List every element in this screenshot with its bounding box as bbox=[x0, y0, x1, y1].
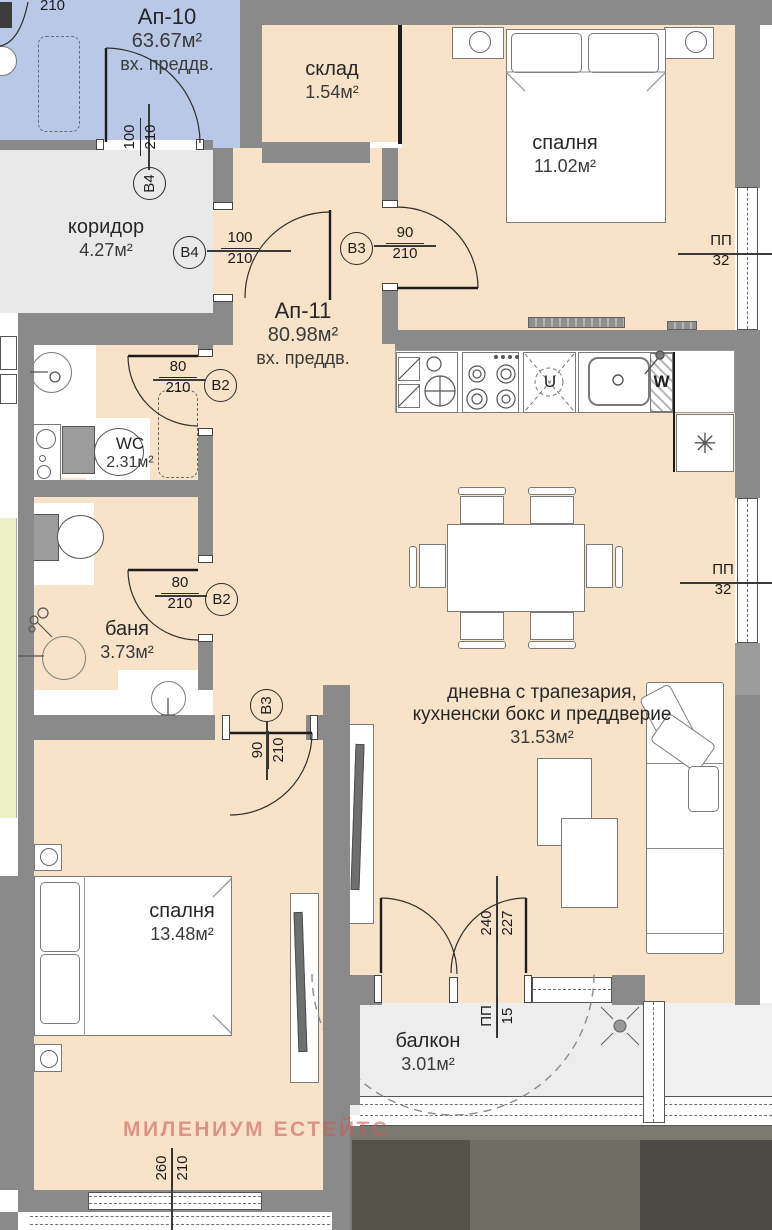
wall bbox=[198, 434, 213, 480]
window-num: 32 bbox=[709, 251, 734, 271]
bath-name: баня bbox=[100, 618, 153, 642]
chair-back bbox=[528, 641, 576, 649]
lamp-icon bbox=[469, 31, 491, 53]
unit-w-text: W bbox=[653, 372, 669, 392]
label-balcony: балкон 3.01м² bbox=[396, 1030, 461, 1075]
bedroom-bottom-area: 13.48м² bbox=[149, 924, 215, 945]
door-tag-b3-kitchen: В3 bbox=[340, 232, 373, 265]
ground-block-3 bbox=[640, 1140, 772, 1230]
window-balcony-fixed bbox=[532, 977, 612, 1003]
door-jamb bbox=[213, 202, 233, 210]
dim-w: 80 bbox=[159, 357, 197, 378]
dim-w: 100 bbox=[221, 228, 259, 249]
chair bbox=[530, 496, 574, 524]
label-bedroom-bottom: спалня 13.48м² bbox=[149, 900, 215, 945]
koridor-area: 4.27м² bbox=[68, 240, 144, 261]
ground-block-2 bbox=[470, 1140, 640, 1230]
window-glass-line bbox=[89, 1196, 261, 1197]
dim-h: 210 bbox=[163, 594, 196, 614]
dim-w: 80 bbox=[161, 573, 199, 594]
pillow bbox=[588, 33, 659, 73]
wall bbox=[213, 148, 233, 208]
label-bath: баня 3.73м² bbox=[100, 618, 153, 663]
washbasin-icon bbox=[31, 352, 72, 393]
wall bbox=[18, 313, 233, 345]
door-jamb bbox=[213, 294, 233, 302]
lamp-icon bbox=[40, 1050, 58, 1068]
door-tag-b2-wc: В2 bbox=[204, 369, 237, 402]
dim-h: 210 bbox=[269, 733, 289, 766]
window-glass-line bbox=[747, 188, 748, 329]
ap10-area: 63.67м² bbox=[120, 30, 214, 54]
window-tag: ПП bbox=[477, 997, 498, 1035]
door-tag-b4-ap10: В4 bbox=[133, 167, 166, 200]
wc-area: 2.31м² bbox=[106, 454, 153, 473]
window-glass-line bbox=[533, 989, 611, 990]
dim-door-b2-bath: 80 210 bbox=[156, 573, 204, 613]
window-num: 15 bbox=[498, 1004, 518, 1029]
door-jamb bbox=[524, 975, 532, 1003]
wall bbox=[345, 1003, 360, 1105]
stove-icon bbox=[462, 352, 519, 413]
wall bbox=[382, 289, 398, 344]
wall bbox=[612, 975, 645, 1005]
lamp-icon bbox=[685, 31, 707, 53]
bath-area: 3.73м² bbox=[100, 642, 153, 663]
sklad-area: 1.54м² bbox=[305, 82, 358, 103]
dim-h: 210 bbox=[141, 120, 161, 153]
washer-drum-icon bbox=[36, 429, 56, 449]
dim-h: 210 bbox=[223, 249, 256, 269]
kitchen-divider-line bbox=[673, 352, 675, 472]
window-label-pp32-top: ПП 32 bbox=[698, 231, 744, 270]
railing-line bbox=[360, 1115, 772, 1116]
shower-tray-icon bbox=[42, 636, 86, 680]
ground-block-1 bbox=[352, 1140, 470, 1230]
chair bbox=[530, 612, 574, 640]
toilet-cistern-icon bbox=[30, 514, 59, 561]
sink-basin-icon bbox=[588, 357, 650, 406]
water-heater bbox=[158, 390, 198, 478]
lamp-icon bbox=[40, 848, 58, 866]
ap11-name: Ап-11 bbox=[256, 298, 350, 324]
door-jamb bbox=[198, 634, 213, 642]
vent-asterisk-icon: ✳ bbox=[693, 427, 716, 460]
watermark: МИЛЕНИУМ ЕСТЕЙТС bbox=[123, 1118, 390, 1142]
railing-line bbox=[360, 1104, 772, 1105]
neighbor-strip-yellow bbox=[0, 518, 17, 818]
door-jamb bbox=[96, 139, 104, 150]
chair-back bbox=[615, 546, 623, 588]
pillow bbox=[40, 882, 80, 952]
chair-back bbox=[409, 546, 417, 588]
label-ap10: Ап-10 63.67м² вх. преддв. bbox=[120, 4, 214, 75]
wall bbox=[262, 142, 370, 163]
door-jamb bbox=[198, 349, 213, 357]
balcony-divider bbox=[643, 1001, 665, 1123]
cabinet-door-panel bbox=[398, 384, 420, 408]
pillow bbox=[40, 954, 80, 1024]
door-jamb bbox=[382, 283, 398, 291]
wall bbox=[395, 330, 735, 350]
door-jamb bbox=[198, 428, 213, 436]
sofa-cushion-line bbox=[647, 933, 723, 934]
living-line2: кухненски бокс и преддверие bbox=[413, 704, 672, 726]
dim-pp15-balcony: ПП 15 bbox=[477, 990, 517, 1042]
wall bbox=[735, 25, 760, 188]
door-tag-b2-bath: В2 bbox=[205, 583, 238, 616]
neighbor-wardrobe bbox=[38, 36, 80, 132]
wall bbox=[332, 1212, 350, 1230]
sofa-armrest bbox=[688, 766, 719, 812]
chair bbox=[460, 612, 504, 640]
window-tag: ПП bbox=[704, 560, 742, 580]
window-label-pp32-mid: ПП 32 bbox=[700, 560, 746, 599]
neighbor-dark-box bbox=[0, 2, 12, 28]
washer-knob-icon bbox=[39, 455, 46, 462]
chair bbox=[419, 544, 446, 588]
living-area: 31.53м² bbox=[413, 727, 672, 748]
wall bbox=[198, 497, 213, 557]
wall bbox=[240, 25, 262, 148]
ap10-entry: вх. преддв. bbox=[120, 54, 214, 75]
door-jamb bbox=[310, 715, 318, 740]
label-bedroom-top: спалня 11.02м² bbox=[532, 132, 598, 177]
door-jamb bbox=[374, 975, 382, 1003]
chair bbox=[460, 496, 504, 524]
dining-table bbox=[447, 524, 585, 612]
wall bbox=[0, 1212, 18, 1230]
dim-w: 100 bbox=[120, 118, 141, 156]
window-glass-line bbox=[89, 1203, 261, 1204]
sklad-name: склад bbox=[305, 58, 358, 82]
chair bbox=[586, 544, 613, 588]
label-ap11: Ап-11 80.98м² вх. преддв. bbox=[256, 298, 350, 369]
blanket-line bbox=[84, 876, 85, 1036]
dim-door-ap10: 100 210 bbox=[120, 109, 160, 165]
dim-w: 260 bbox=[152, 1149, 173, 1187]
wall bbox=[240, 0, 772, 25]
door-tag-b4-ap11: В4 bbox=[173, 236, 206, 269]
vent-unit: ✳ bbox=[676, 414, 734, 472]
wall bbox=[323, 685, 350, 1190]
chair-back bbox=[528, 487, 576, 495]
coffee-table bbox=[561, 818, 618, 908]
window-glass-line bbox=[747, 499, 748, 642]
koridor-name: коридор bbox=[68, 216, 144, 240]
dim-w: 90 bbox=[386, 223, 424, 244]
washer-knob-icon bbox=[37, 465, 51, 479]
door-jamb bbox=[196, 139, 204, 150]
window-tag: ПП bbox=[702, 231, 740, 251]
chair-back bbox=[458, 641, 506, 649]
site-dashed-line bbox=[30, 1216, 330, 1217]
site-dashed-line bbox=[30, 1224, 330, 1225]
dim-balcony-door: 240 227 bbox=[477, 895, 517, 951]
pillow bbox=[511, 33, 582, 73]
unit-u-text: U bbox=[544, 372, 556, 392]
washing-machine-icon bbox=[32, 424, 61, 482]
door-tag-b3-bedroom: В3 bbox=[250, 689, 283, 722]
dim-bedroom-window: 260 210 bbox=[152, 1140, 192, 1196]
floor-plan: U W ✳ bbox=[0, 0, 772, 1230]
divider-line bbox=[653, 1002, 654, 1122]
dim-h: 210 bbox=[161, 378, 194, 398]
door-jamb bbox=[198, 555, 213, 563]
wall bbox=[198, 640, 213, 690]
wall bbox=[18, 345, 34, 1190]
door-jamb bbox=[222, 715, 230, 740]
toilet-bowl-icon bbox=[57, 515, 104, 559]
balcony-railing bbox=[360, 1096, 772, 1126]
wall bbox=[18, 715, 215, 740]
chair-back bbox=[458, 487, 506, 495]
wc-name: WC bbox=[106, 434, 153, 454]
bedroom-top-area: 11.02м² bbox=[532, 156, 598, 177]
wall-block bbox=[735, 643, 760, 695]
neighbor-appliance bbox=[0, 374, 17, 404]
partition-storage bbox=[398, 25, 402, 144]
ap10-name: Ап-10 bbox=[120, 4, 214, 30]
wall bbox=[735, 643, 760, 1005]
wall bbox=[382, 148, 398, 207]
door-jamb bbox=[382, 200, 398, 208]
dim-h: 227 bbox=[498, 906, 518, 939]
toilet-cistern-icon bbox=[62, 426, 95, 474]
cabinet-u-label: U bbox=[538, 372, 562, 392]
wall bbox=[30, 480, 213, 497]
dim-h: 210 bbox=[173, 1151, 193, 1184]
dim-door-ap11: 100 210 bbox=[212, 228, 268, 268]
radiator bbox=[528, 317, 625, 328]
dim-w: 240 bbox=[477, 904, 498, 942]
balcony-name: балкон bbox=[396, 1030, 461, 1054]
sofa-cushion-line bbox=[647, 848, 723, 849]
cabinet-door-panel bbox=[398, 357, 420, 381]
living-line1: дневна с трапезария, bbox=[413, 682, 672, 704]
dim-door-b2-wc: 80 210 bbox=[154, 357, 202, 397]
dim-partial-top: 210 bbox=[40, 0, 65, 14]
dim-h: 210 bbox=[388, 244, 421, 264]
ap11-area: 80.98м² bbox=[256, 324, 350, 348]
label-koridor: коридор 4.27м² bbox=[68, 216, 144, 261]
washbasin-icon bbox=[151, 681, 186, 716]
dim-door-b3-kitchen: 90 210 bbox=[379, 223, 431, 263]
dim-w: 90 bbox=[248, 731, 269, 769]
bedroom-bottom-name: спалня bbox=[149, 900, 215, 924]
radiator bbox=[667, 321, 697, 330]
wall bbox=[735, 330, 760, 498]
label-sklad: склад 1.54м² bbox=[305, 58, 358, 103]
neighbor-appliance bbox=[0, 336, 17, 370]
balcony-area: 3.01м² bbox=[396, 1054, 461, 1075]
dim-door-b3-bedroom: 90 210 bbox=[248, 722, 288, 778]
bedroom-top-name: спалня bbox=[532, 132, 598, 156]
window-num: 32 bbox=[711, 580, 736, 600]
washer-w-label: W bbox=[650, 372, 673, 392]
label-wc: WC 2.31м² bbox=[106, 434, 153, 473]
door-jamb bbox=[449, 977, 458, 1003]
label-living: дневна с трапезария, кухненски бокс и пр… bbox=[413, 682, 672, 748]
neighbor-strip-wall bbox=[0, 876, 18, 1190]
ap11-entry: вх. преддв. bbox=[256, 348, 350, 369]
